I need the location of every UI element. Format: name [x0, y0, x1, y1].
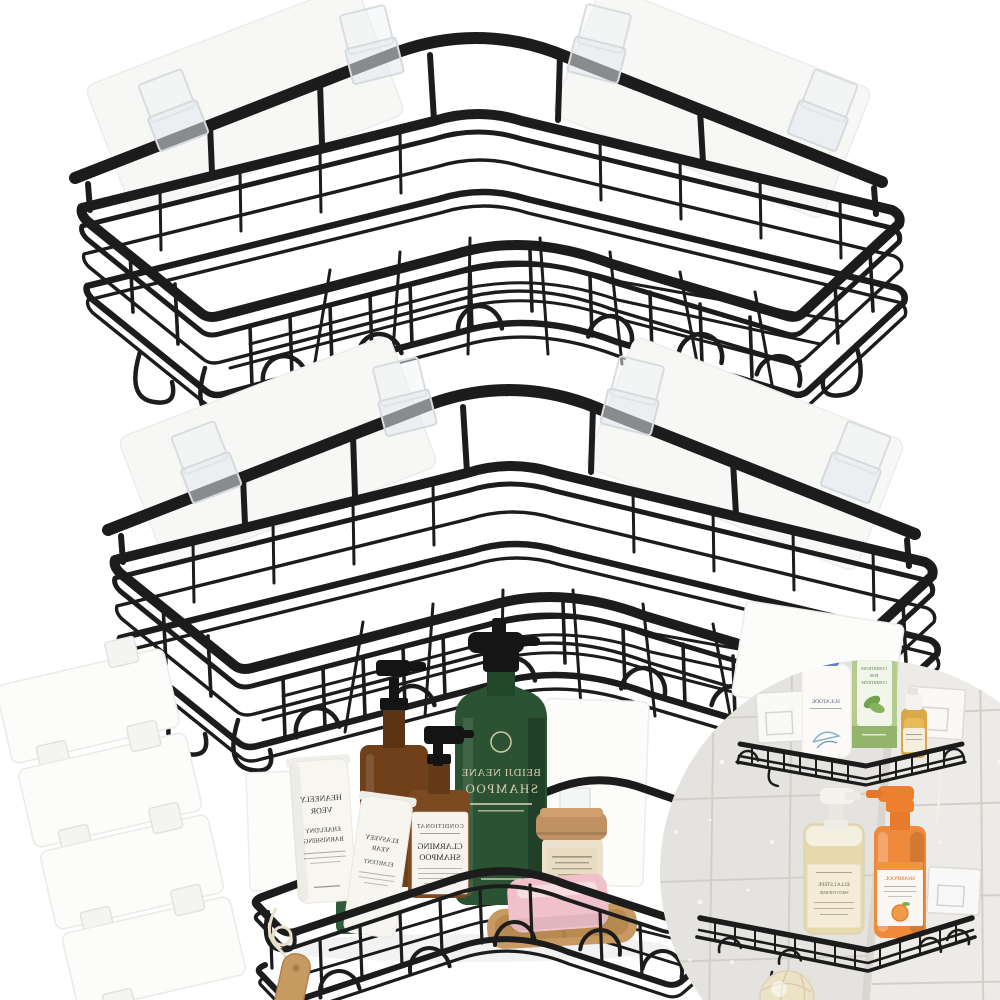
svg-text:SULATODE: SULATODE: [811, 699, 840, 705]
spray-cap: [906, 694, 922, 710]
orange-fruit-illustration: [892, 905, 908, 921]
product-photo: BEIDJI NEANE SHAMPOO: [0, 0, 1000, 1000]
sheet-tab: [104, 636, 139, 668]
svg-text:SMOOTHERME: SMOOTHERME: [819, 890, 849, 895]
svg-text:BEIDJI NEANE: BEIDJI NEANE: [461, 767, 541, 779]
svg-text:SHAMPOO: SHAMPOO: [419, 852, 461, 862]
svg-text:SHAMPOOL: SHAMPOOL: [884, 876, 915, 882]
label-text-mirrored: BEIDJI NEANE SHAMPOO: [461, 767, 541, 796]
svg-text:SHAMPOO: SHAMPOO: [464, 781, 538, 796]
svg-text:CONDITIONS: CONDITIONS: [861, 666, 887, 671]
adhesive-pad: [927, 867, 981, 916]
label-text-mirrored: CONDITIONAT CLARMING SHAMPOO: [416, 824, 463, 862]
sheet-tab: [148, 802, 183, 834]
svg-text:PUR: PUR: [870, 673, 878, 678]
svg-text:CONDITIONAT: CONDITIONAT: [416, 824, 463, 830]
svg-text:CLARMING: CLARMING: [417, 841, 462, 851]
adhesive-pad: [756, 691, 807, 743]
adhesive-sheet-stack: [0, 630, 250, 1000]
svg-text:CONDITIONE: CONDITIONE: [861, 680, 887, 685]
sheet-tab: [170, 884, 205, 916]
corner-shelf-1: [75, 0, 906, 419]
sheet-tab: [126, 720, 161, 752]
inset-photo: SULATODE CONDITIONS PUR CONDITIONE: [660, 640, 1000, 1000]
svg-text:VEOR: VEOR: [310, 805, 333, 816]
svg-text:ELLA LSTEPE: ELLA LSTEPE: [818, 883, 850, 888]
